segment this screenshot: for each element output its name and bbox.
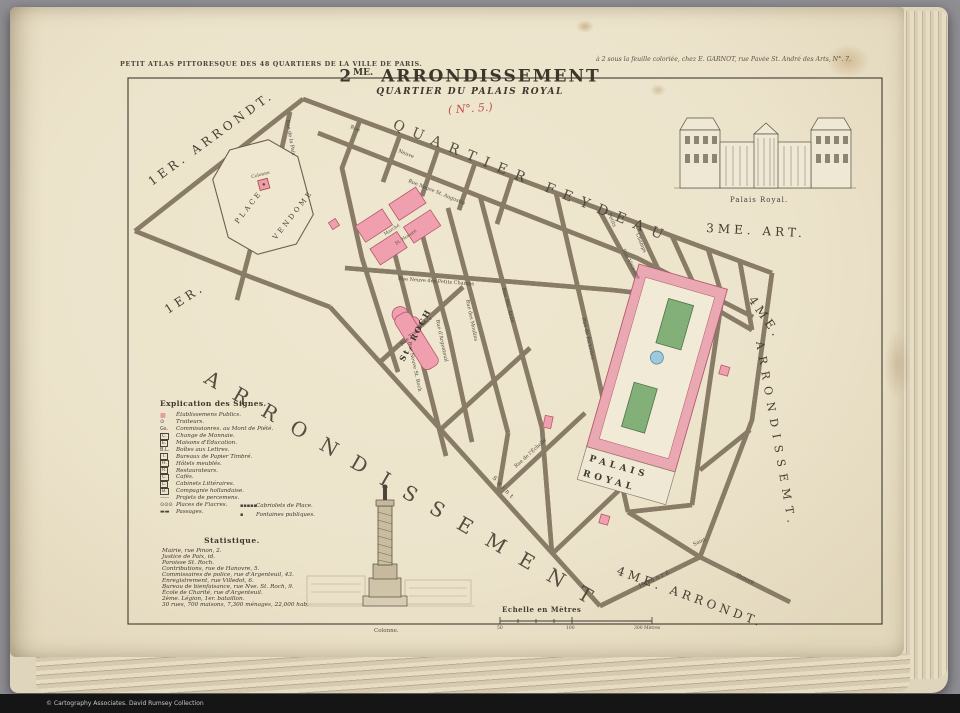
statistics-block: Statistique. Mairie, rue Pinon, 2. Justi… [162,536,362,608]
projets-percemens-icon: ╌╌╌ [160,495,176,501]
legend-item: B.Compagnie hollandaise. [160,488,360,495]
legend-item: ⊙Traiteurs. [160,419,360,426]
legend: Explication des Signes. ■Établissemens P… [160,399,360,515]
scale-label: Echelle en Mètres [502,605,581,614]
traiteurs-icon: ⊙ [160,419,176,425]
legend-item: ▪Fontaines publiques. [240,510,315,519]
legend-item: B.L.Boîtes aux Lettres. [160,446,360,453]
compagnie-hollandaise-icon: B. [160,488,169,495]
cabriolets-place-icon: ▪▪▪▪▪ [240,503,256,509]
copyright-text: © Cartography Associates. David Rumsey C… [46,700,204,707]
scale-tick-3: 300 Mètres [634,624,661,631]
map-title: 2ME. ARRONDISSEMENT [300,64,640,86]
street-label: Rue Ste. Anne [500,287,515,323]
handwritten-plate-number: ( N°. 5.) [447,100,493,116]
legend-item: H.Hôtels meublés. [160,460,360,467]
legend-item: C.Change de Monnaie. [160,433,360,440]
arrondissement-ordinal: ME. [353,68,373,78]
scale-tick-2: 100 [566,625,575,631]
scale-tick-1: 50 [497,625,503,631]
legend-item: C.Cafés. [160,474,360,481]
arr3-label: 3ME. ART. [706,221,806,240]
arr4-side-label: ARRONDISSEMT. [753,339,799,530]
legend-item: ■Établissemens Publics. [160,412,360,419]
legend-item: E.Maisons d'Éducation. [160,440,360,447]
scale-bar: Echelle en Mètres 50 100 300 Mètres [497,605,661,631]
statistics-line: 30 rues, 700 maisons, 7,300 ménages, 22,… [162,602,362,608]
arrondissement-word: ARRONDISSEMENT [381,67,601,87]
legend-title: Explication des Signes. [160,399,360,408]
street-label: Rue Vivienne [620,248,641,280]
map-subtitle: QUARTIER DU PALAIS ROYAL [300,87,640,97]
photo-caption-bar: © Cartography Associates. David Rumsey C… [0,694,960,713]
arr4-bottom-label: 4ME. ARRONDT. [615,564,765,630]
boites-lettres-icon: B.L. [160,447,176,453]
mont-de-piete-icon: Gs. [160,426,176,432]
street-label: Honoré [735,572,755,587]
street-label: Rue de Richelieu [580,317,596,361]
statistics-title: Statistique. [162,536,302,545]
street-label: Neuve [397,148,414,160]
maisons-education-icon: E. [160,440,168,447]
map-title-block: 2ME. ARRONDISSEMENT QUARTIER DU PALAIS R… [300,64,640,116]
legend-item: L.Cabinets Littéraires. [160,481,360,488]
palais-engraving-caption: Palais Royal. [730,196,788,204]
palais-royal-engraving: Palais Royal. [674,118,856,204]
legend-item: T.Bureaux de Papier Timbré. [160,453,360,460]
arrondissement-number: 2 [339,67,353,87]
arr1-mid-label: 1ER. [162,280,208,316]
places-fiacres-icon: ⊙⊙⊙ [160,502,176,508]
fontaines-publiques-icon: ▪ [240,512,256,518]
legend-item: Gs.Commissionres. au Mont de Piété. [160,426,360,433]
legend-extra-column: ▪▪▪▪▪Cabriolets de Place. ▪Fontaines pub… [240,501,315,519]
publisher-imprint: à 2 sous la feuille coloriée, chez E. GA… [596,56,851,63]
etablissements-publics-icon: ■ [160,412,176,419]
colonne-engraving-caption: Colonne. [374,628,399,634]
legend-item: ▪▪▪▪▪Cabriolets de Place. [240,501,315,510]
legend-item: R.Restaurateurs. [160,467,360,474]
passages-icon: ▬▬ [160,509,176,515]
